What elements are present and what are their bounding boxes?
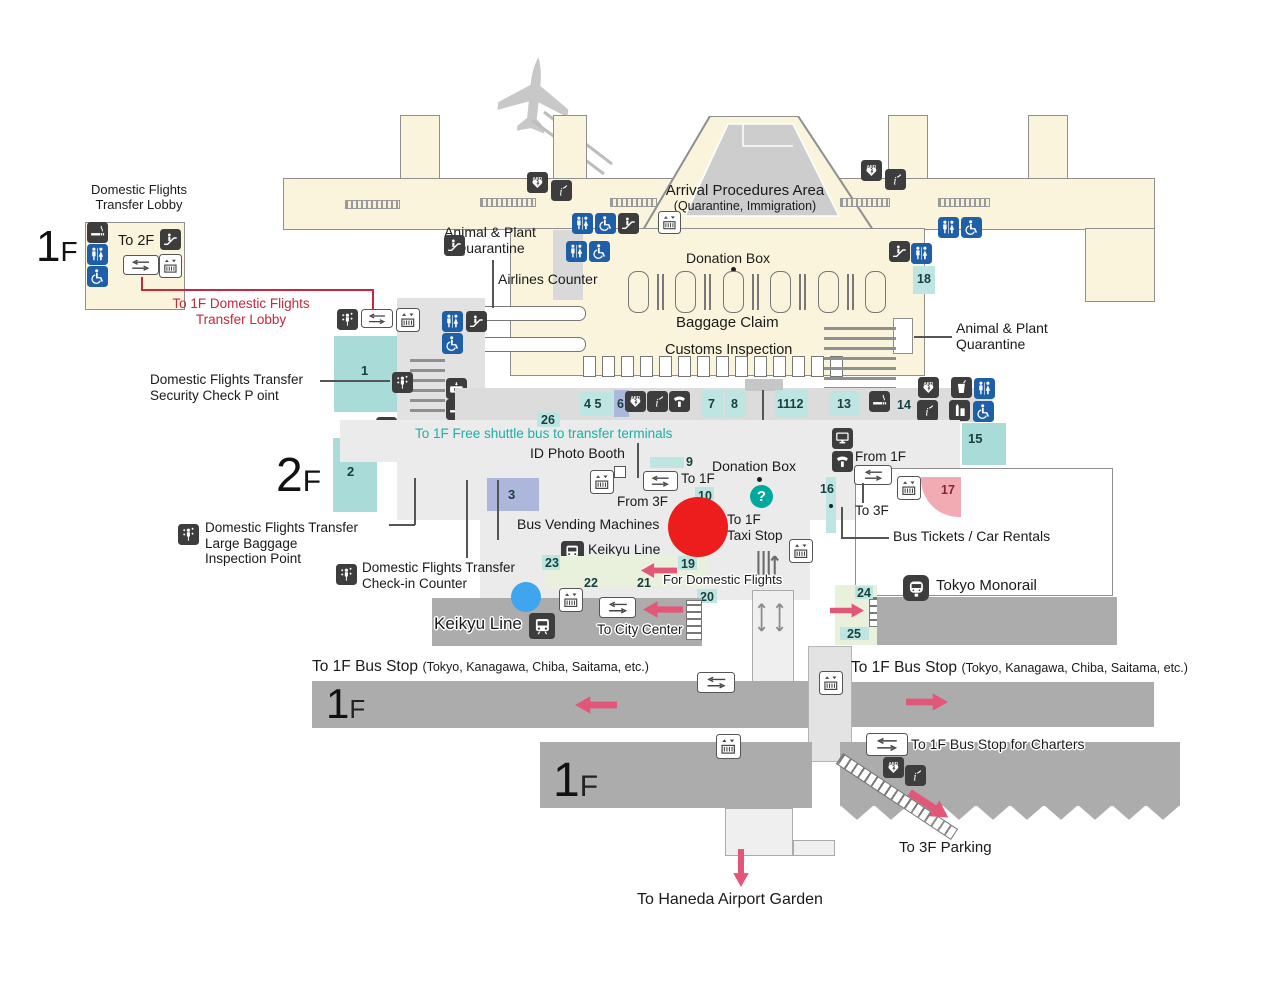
arrival-exit-leader (762, 390, 764, 420)
aed-icon: AED (527, 172, 548, 193)
moving-walkway-icon (643, 471, 678, 491)
donation-box-center-label: Donation Box (712, 458, 796, 474)
zone-number-17: 17 (941, 483, 955, 497)
elevator-icon (396, 308, 420, 332)
customs-counter (811, 356, 824, 377)
arrival-procedures-label: Arrival Procedures Area (Quarantine, Imm… (620, 182, 870, 214)
zone-number-16: 16 (820, 482, 834, 496)
platform-stairs (686, 600, 702, 640)
customs-counter (659, 356, 672, 377)
arrow-right (906, 692, 948, 712)
moving-walkway-icon (361, 309, 393, 328)
id-photo-booth-label: ID Photo Booth (530, 445, 625, 461)
wheelchair-icon (973, 401, 994, 422)
information-question-icon: ? (750, 485, 773, 508)
carousel-line (757, 274, 759, 310)
restroom-icon (566, 241, 587, 262)
airlines-counter-label: Airlines Counter (498, 271, 598, 287)
moving-walkway-icon (854, 465, 892, 485)
wheelchair-icon (442, 333, 463, 354)
to-2f-label: To 2F (118, 233, 154, 250)
moving-walkway-icon (697, 672, 735, 693)
keikyu-band-label: Keikyu Line (434, 614, 522, 634)
shuttle-note: To 1F Free shuttle bus to transfer termi… (415, 426, 672, 442)
gate-hatch (938, 198, 990, 207)
zone-number-15: 15 (968, 431, 982, 446)
zone-number-8: 8 (731, 397, 738, 411)
water-icon (951, 377, 972, 398)
restroom-icon (938, 217, 959, 238)
carousel-line (657, 274, 659, 310)
leader-dot (829, 504, 833, 508)
zone-number-24: 24 (857, 586, 871, 600)
red-connector (141, 289, 374, 291)
bus-band-right (852, 682, 1154, 727)
customs-counter (697, 356, 710, 377)
floor-label-1f-lower: 1F (553, 753, 598, 808)
customs-counter (716, 356, 729, 377)
carousel-line (704, 274, 706, 310)
baggage-carousel (818, 271, 839, 313)
customs-counter (773, 356, 786, 377)
svg-text:i: i (893, 173, 896, 187)
floor-label-1f-busleft: 1F (326, 680, 365, 728)
carousel-line (852, 274, 854, 310)
wheelchair-icon (589, 241, 610, 262)
security-check-icon (392, 372, 413, 393)
sawtooth-edge (840, 805, 1180, 821)
donation-box-center-dot (757, 477, 762, 482)
carousel-line (752, 274, 754, 310)
bus-vending-label: Bus Vending Machines (517, 516, 659, 532)
stairs-double-arrow-icon (755, 594, 769, 640)
smoking-icon (869, 391, 890, 412)
leader-line (862, 483, 864, 503)
wheelchair-icon (87, 266, 108, 287)
elevator-icon (897, 476, 921, 500)
zone-number-9: 9 (686, 455, 693, 469)
leader-line (637, 443, 639, 478)
phone-icon (669, 391, 690, 412)
gate-hatch (345, 200, 400, 209)
bus-tickets-label: Bus Tickets / Car Rentals (893, 528, 1050, 544)
baggage-carousel (675, 271, 696, 313)
wheelchair-icon (595, 213, 616, 234)
bus-stop-right-label: To 1F Bus Stop (Tokyo, Kanagawa, Chiba, … (851, 659, 1188, 677)
corridor-lower-lip (793, 840, 835, 856)
leader-line (389, 524, 415, 526)
cell-9 (650, 457, 684, 468)
escalator-icon (618, 213, 639, 234)
leader-line (320, 380, 390, 382)
leader-line (841, 537, 889, 539)
zone-number-25: 25 (847, 627, 861, 641)
zone-number-14: 14 (897, 398, 911, 412)
info-icon: i (885, 169, 906, 190)
elevator-icon (789, 539, 813, 563)
terminal-pier (400, 115, 440, 181)
zone-number-4-5: 4 5 (584, 397, 601, 411)
smoking-icon (87, 222, 108, 243)
baggage-carousel (865, 271, 886, 313)
vending-icon (949, 400, 970, 421)
elevator-icon (819, 671, 843, 695)
restroom-icon (442, 311, 463, 332)
zone-number-11-12: 1112 (777, 397, 803, 411)
arrival-strip (455, 388, 992, 422)
baggage-carousel (628, 271, 649, 313)
leader-line (914, 336, 952, 338)
customs-counter (678, 356, 691, 377)
queue-lines (410, 356, 445, 412)
escalator-icon (889, 241, 910, 262)
to-3f-label: To 3F (855, 503, 889, 519)
restroom-icon (974, 378, 995, 399)
leader-line (414, 478, 416, 525)
zone-number-21: 21 (637, 576, 651, 590)
customs-counter (640, 356, 653, 377)
info-icon: i (917, 400, 938, 421)
stairs-double-arrow-icon (773, 594, 787, 640)
arrow-down (731, 849, 751, 887)
red-circle-marker[interactable] (668, 497, 728, 557)
svg-text:i: i (655, 395, 658, 409)
zone-number-23: 23 (545, 556, 559, 570)
moving-walkway-icon (599, 597, 636, 618)
zone-number-13: 13 (837, 397, 851, 411)
to-city-center-label: To City Center (597, 622, 683, 638)
carousel-line (709, 274, 711, 310)
zone-number-3: 3 (508, 487, 515, 502)
svg-text:i: i (925, 404, 928, 418)
zone-number-19: 19 (681, 557, 695, 571)
airport-terminal-map: Arrival Procedures Area (Quarantine, Imm… (0, 0, 1273, 1004)
leader-line (466, 480, 468, 558)
customs-counter (754, 356, 767, 377)
restroom-icon (911, 243, 932, 264)
carousel-line (847, 274, 849, 310)
aed-icon: AED (918, 377, 939, 398)
restroom-icon (87, 244, 108, 265)
security-check-icon (178, 524, 199, 545)
security-check-label: Domestic Flights Transfer Security Check… (150, 372, 303, 403)
carousel-line (799, 274, 801, 310)
zone-number-6: 6 (617, 397, 624, 411)
arrow-right (830, 602, 864, 619)
carousel-line (804, 274, 806, 310)
zone-number-26: 26 (541, 413, 555, 427)
terminal-pier (553, 115, 587, 181)
info-icon: i (647, 391, 668, 412)
zone-number-20: 20 (700, 590, 714, 604)
transfer-lobby-title: Domestic Flights Transfer Lobby (76, 183, 202, 213)
charters-label: To 1F Bus Stop for Charters (911, 736, 1085, 752)
moving-walkway-icon (123, 255, 159, 275)
zone-number-2: 2 (347, 464, 354, 479)
elevator-icon (559, 588, 583, 612)
monorail-band (877, 597, 1117, 645)
monorail-icon (903, 575, 929, 601)
taxi-stop-label: To 1F Taxi Stop (727, 512, 783, 543)
aed-icon: AED (625, 391, 646, 412)
donation-box-hall-label: Donation Box (686, 250, 770, 266)
customs-counter (621, 356, 634, 377)
from-1f-label: From 1F (855, 449, 906, 465)
tokyo-monorail-label: Tokyo Monorail (936, 577, 1037, 594)
customs-counter (602, 356, 615, 377)
zone-number-18: 18 (917, 272, 931, 286)
elevator-icon (590, 470, 614, 494)
carousel-line (662, 274, 664, 310)
zone-number-7: 7 (708, 397, 715, 411)
security-check-icon (336, 564, 357, 585)
escalator-icon (160, 229, 181, 250)
to-1f-center-label: To 1F (681, 471, 715, 487)
svg-text:i: i (559, 184, 562, 198)
parking-label: To 3F Parking (899, 839, 992, 856)
id-photo-marker (614, 466, 626, 478)
gate-hatch (480, 198, 536, 207)
queue-lines (824, 322, 896, 390)
blue-circle-marker[interactable] (511, 582, 541, 612)
baggage-carousel (723, 271, 744, 313)
customs-counter (792, 356, 805, 377)
baggage-carousel (770, 271, 791, 313)
phone-icon (832, 451, 853, 472)
floor-label-1f-lobby: 1F (36, 222, 78, 272)
svg-text:i: i (913, 769, 916, 783)
large-baggage-label: Domestic Flights Transfer Large Baggage … (205, 520, 358, 567)
leader-line (841, 507, 843, 538)
computer-icon (832, 428, 853, 449)
elevator-icon (716, 734, 741, 759)
zone-number-1: 1 (361, 363, 368, 378)
aed-icon: AED (861, 160, 882, 181)
red-connector (372, 289, 374, 309)
arrow-left (643, 600, 683, 619)
moving-walkway-icon (866, 733, 908, 756)
arrow-left (575, 695, 617, 715)
elevator-icon (159, 254, 182, 278)
leader-line (492, 260, 494, 308)
security-check-icon (337, 309, 358, 330)
checkin-counter-label: Domestic Flights Transfer Check-in Count… (362, 560, 515, 591)
terminal-right-wing (1085, 228, 1155, 302)
terminal-pier (1028, 115, 1068, 181)
restroom-icon (572, 213, 593, 234)
aed-icon: AED (883, 757, 904, 778)
bus-stop-left-label: To 1F Bus Stop (Tokyo, Kanagawa, Chiba, … (312, 658, 649, 676)
for-domestic-label: For Domestic Flights (663, 573, 782, 588)
wheelchair-icon (961, 217, 982, 238)
train-icon (529, 613, 555, 639)
zone-number-22: 22 (584, 576, 598, 590)
from-3f-label: From 3F (617, 494, 668, 510)
quarantine-booth (893, 318, 913, 354)
elevator-icon (658, 211, 681, 234)
garden-label: To Haneda Airport Garden (637, 891, 823, 909)
red-note-transfer-lobby: To 1F Domestic Flights Transfer Lobby (155, 296, 327, 327)
keikyu-line-upper-label: Keikyu Line (588, 541, 660, 557)
floor-label-2f: 2F (276, 448, 321, 503)
info-icon: i (551, 180, 572, 201)
customs-counter (583, 356, 596, 377)
customs-counter (735, 356, 748, 377)
baggage-claim-label: Baggage Claim (676, 314, 779, 331)
info-icon: i (905, 765, 926, 786)
leader-line (497, 480, 499, 540)
escalator-icon (466, 311, 487, 332)
animal-quarantine-right-label: Animal & Plant Quarantine (956, 320, 1048, 352)
escalator-icon (444, 235, 465, 256)
